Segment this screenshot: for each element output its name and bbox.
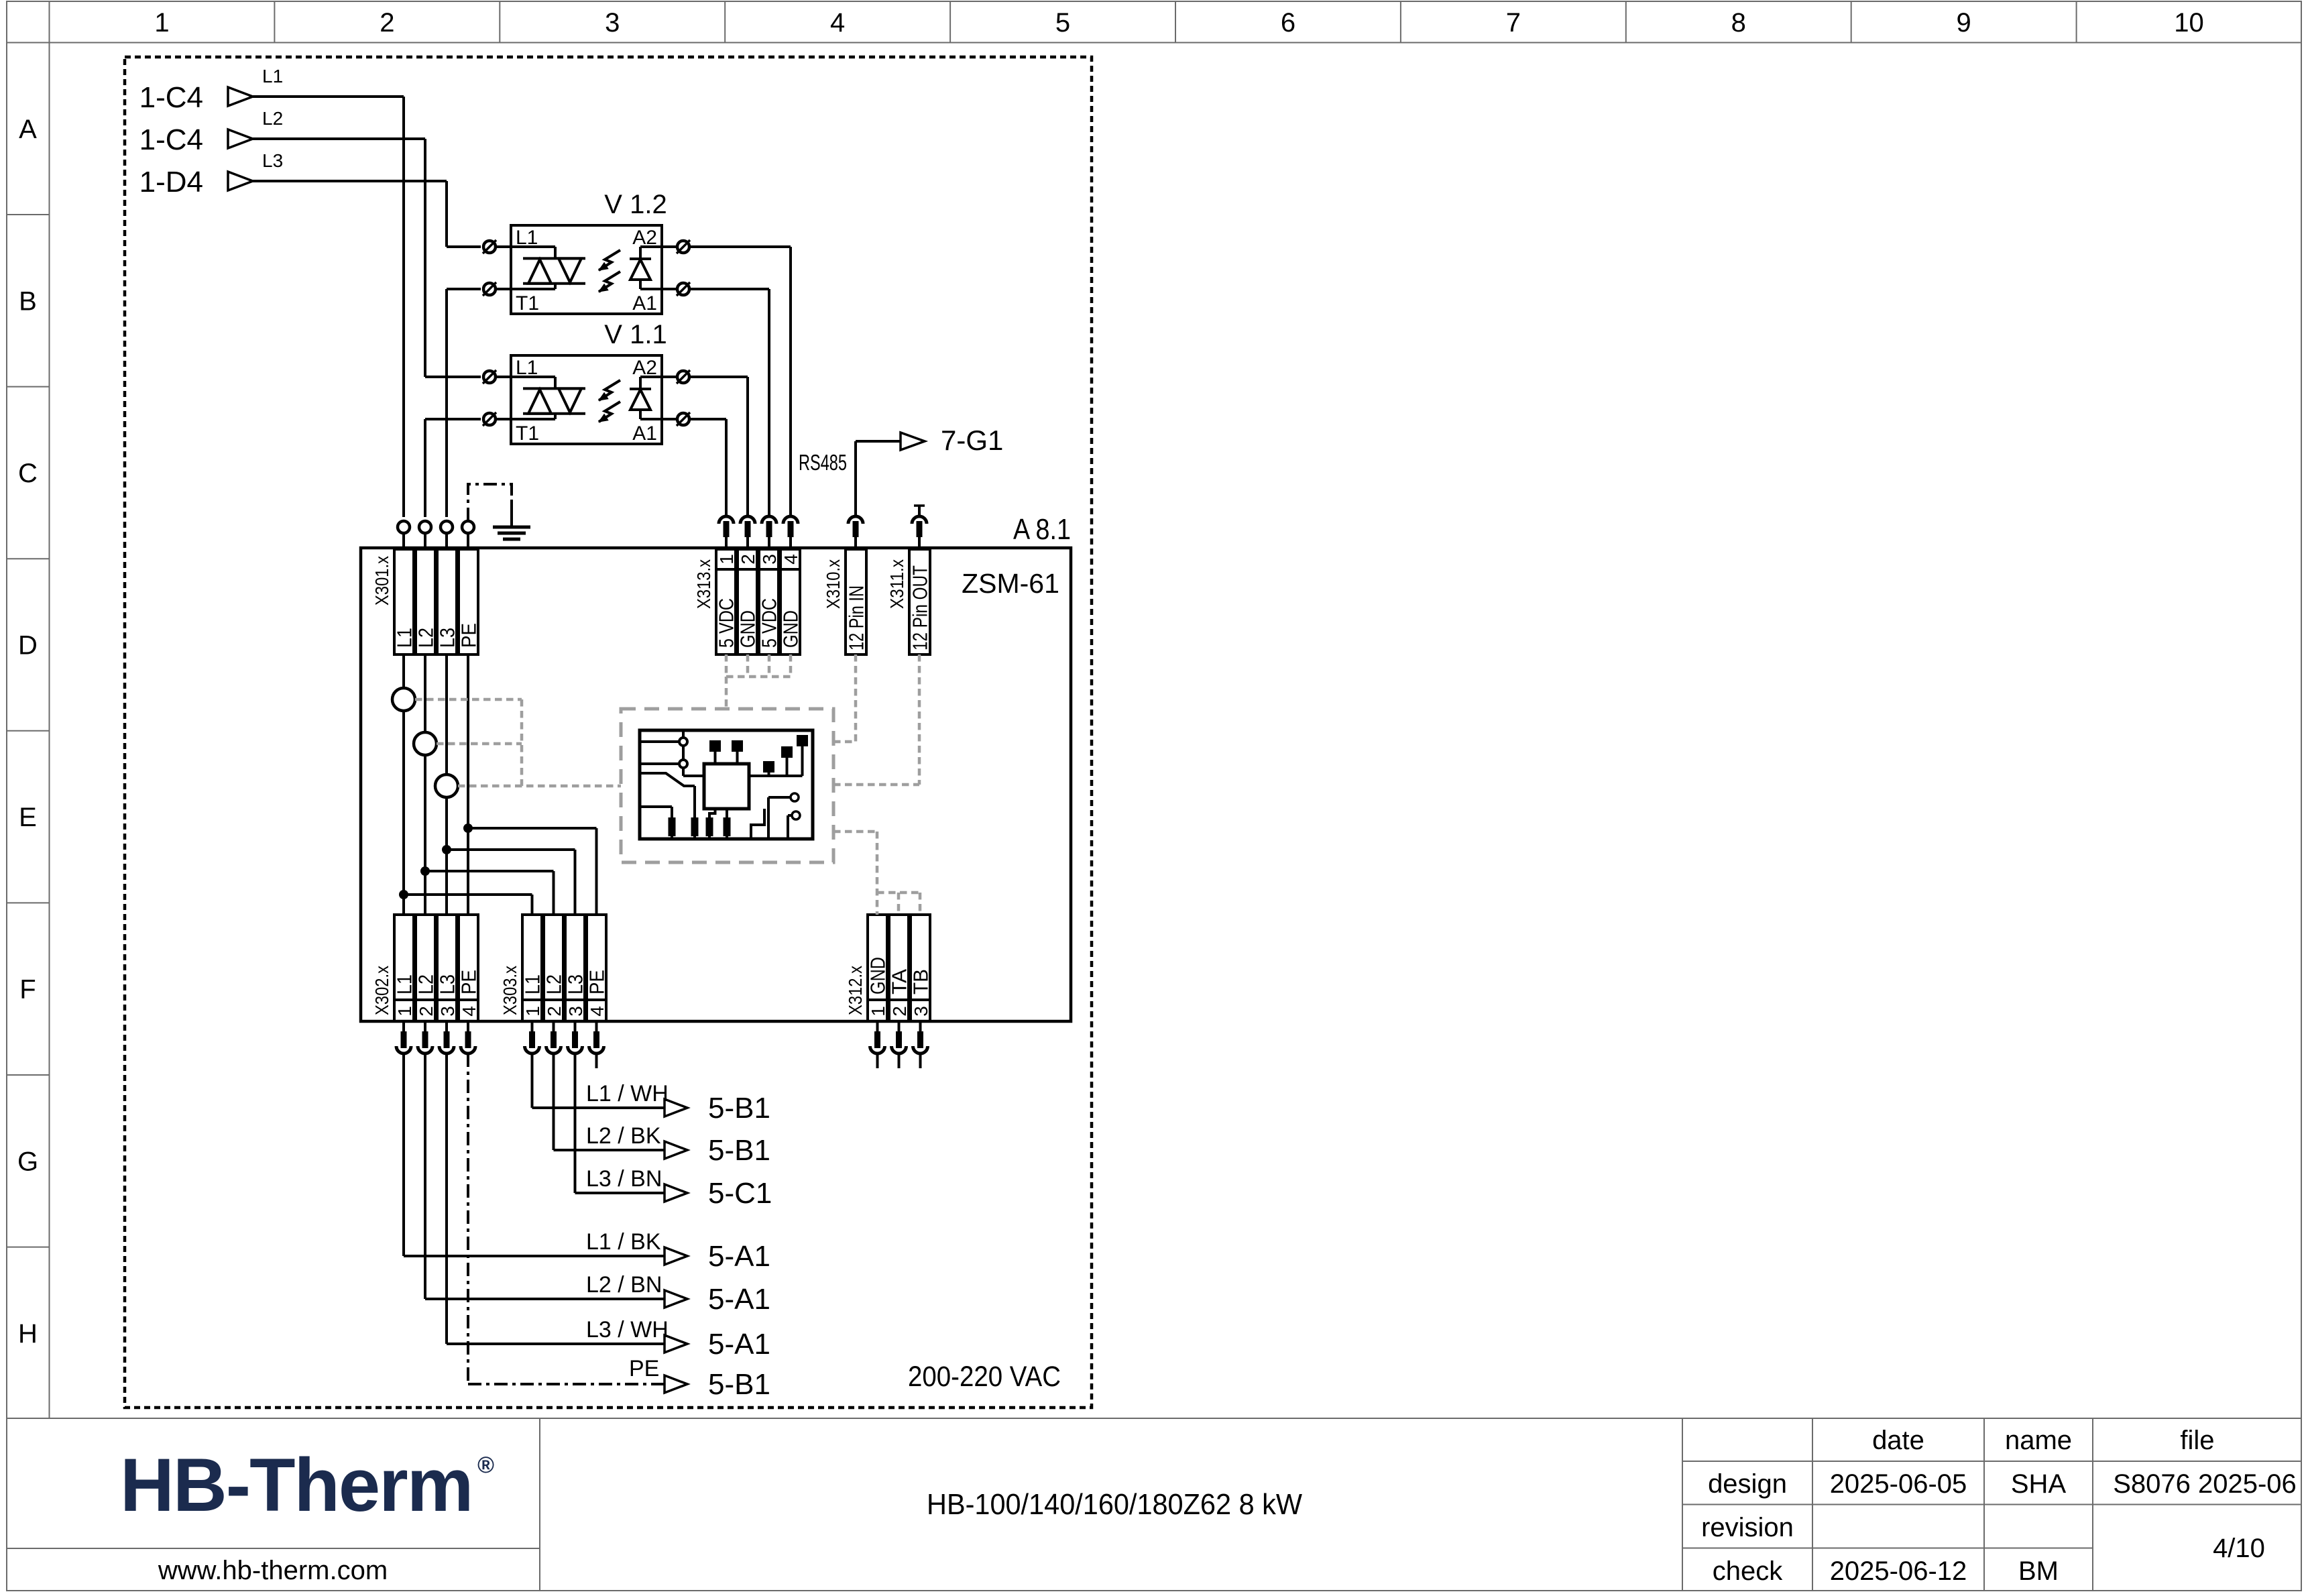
- svg-text:L2 / BK: L2 / BK: [586, 1123, 661, 1149]
- svg-text:12 Pin OUT: 12 Pin OUT: [909, 565, 932, 650]
- svg-text:5-B1: 5-B1: [708, 1134, 770, 1167]
- svg-text:PE: PE: [629, 1356, 659, 1381]
- svg-text:1-C4: 1-C4: [139, 81, 203, 114]
- svg-text:4: 4: [781, 554, 801, 565]
- svg-text:V 1.1: V 1.1: [604, 320, 667, 349]
- svg-text:GND: GND: [779, 610, 803, 648]
- svg-text:T1: T1: [516, 422, 539, 445]
- svg-text:L3: L3: [436, 628, 459, 648]
- svg-text:G: G: [17, 1147, 38, 1176]
- svg-text:2: 2: [380, 8, 394, 38]
- svg-text:PE: PE: [457, 623, 481, 648]
- svg-text:2: 2: [416, 1006, 437, 1017]
- svg-text:200-220 VAC: 200-220 VAC: [908, 1361, 1061, 1393]
- svg-text:L1 / WH: L1 / WH: [586, 1081, 669, 1106]
- svg-text:7-G1: 7-G1: [941, 424, 1003, 456]
- svg-text:L3 / BN: L3 / BN: [586, 1166, 662, 1192]
- svg-text:BM: BM: [2018, 1556, 2059, 1586]
- svg-text:L1: L1: [393, 974, 416, 994]
- svg-text:date: date: [1872, 1426, 1924, 1455]
- svg-text:A 8.1: A 8.1: [1013, 513, 1071, 546]
- svg-text:B: B: [19, 286, 37, 316]
- svg-text:S8076 2025-06: S8076 2025-06: [2113, 1469, 2297, 1499]
- svg-text:X311.x: X311.x: [886, 559, 907, 609]
- svg-text:4: 4: [587, 1006, 608, 1017]
- svg-text:L2 / BN: L2 / BN: [586, 1272, 662, 1298]
- svg-text:L3: L3: [564, 974, 587, 994]
- svg-text:A1: A1: [632, 422, 657, 445]
- svg-text:5 VDC: 5 VDC: [758, 598, 781, 648]
- svg-text:1: 1: [716, 554, 737, 565]
- svg-text:2025-06-05: 2025-06-05: [1830, 1469, 1967, 1499]
- svg-text:5-A1: 5-A1: [708, 1240, 770, 1273]
- svg-text:file: file: [2180, 1426, 2214, 1455]
- svg-text:2025-06-12: 2025-06-12: [1830, 1556, 1967, 1586]
- svg-text:1: 1: [522, 1006, 543, 1017]
- svg-text:C: C: [18, 459, 38, 488]
- svg-text:L2: L2: [414, 628, 438, 648]
- svg-text:12 Pin IN: 12 Pin IN: [845, 585, 868, 650]
- svg-text:T1: T1: [516, 292, 539, 315]
- svg-text:L3 / WH: L3 / WH: [586, 1317, 669, 1343]
- svg-text:X313.x: X313.x: [693, 559, 714, 609]
- svg-text:5-B1: 5-B1: [708, 1092, 770, 1125]
- svg-text:check: check: [1713, 1556, 1783, 1586]
- svg-text:10: 10: [2174, 8, 2204, 38]
- svg-text:RS485: RS485: [799, 450, 847, 475]
- svg-text:2: 2: [544, 1006, 565, 1017]
- svg-text:HB-100/140/160/180Z62 8 kW: HB-100/140/160/180Z62 8 kW: [927, 1488, 1302, 1521]
- svg-text:3: 3: [605, 8, 620, 38]
- svg-text:revision: revision: [1701, 1513, 1794, 1542]
- svg-text:GND: GND: [866, 957, 890, 994]
- svg-text:A: A: [19, 115, 37, 144]
- svg-text:H: H: [18, 1319, 38, 1349]
- svg-text:5-C1: 5-C1: [708, 1177, 772, 1210]
- svg-text:www.hb-therm.com: www.hb-therm.com: [158, 1556, 388, 1585]
- svg-text:L2: L2: [262, 108, 283, 129]
- svg-text:X301.x: X301.x: [371, 556, 392, 606]
- svg-text:1-C4: 1-C4: [139, 123, 203, 156]
- svg-text:4: 4: [830, 8, 845, 38]
- svg-text:F: F: [19, 975, 36, 1005]
- svg-text:5-B1: 5-B1: [708, 1368, 770, 1401]
- svg-text:design: design: [1708, 1469, 1787, 1499]
- svg-text:1-D4: 1-D4: [139, 166, 203, 198]
- svg-text:PE: PE: [585, 970, 609, 994]
- svg-text:GND: GND: [736, 610, 760, 648]
- svg-text:4/10: 4/10: [2213, 1534, 2265, 1563]
- svg-text:X303.x: X303.x: [500, 966, 520, 1015]
- svg-text:PE: PE: [457, 970, 481, 994]
- svg-text:5-A1: 5-A1: [708, 1328, 770, 1361]
- svg-text:L3: L3: [262, 150, 283, 171]
- svg-text:5 VDC: 5 VDC: [715, 598, 738, 648]
- svg-text:name: name: [2005, 1426, 2072, 1455]
- svg-text:4: 4: [459, 1006, 479, 1017]
- svg-text:1: 1: [394, 1006, 415, 1017]
- svg-text:3: 3: [565, 1006, 586, 1017]
- svg-text:2: 2: [738, 554, 758, 565]
- svg-text:ZSM-61: ZSM-61: [962, 568, 1059, 599]
- svg-text:TB: TB: [909, 969, 933, 994]
- svg-text:HB-Therm: HB-Therm: [120, 1443, 472, 1527]
- svg-text:8: 8: [1731, 8, 1746, 38]
- svg-text:L1: L1: [521, 974, 544, 994]
- svg-text:9: 9: [1957, 8, 1971, 38]
- svg-text:3: 3: [759, 554, 780, 565]
- svg-text:®: ®: [477, 1452, 494, 1478]
- svg-text:3: 3: [911, 1006, 931, 1017]
- svg-text:D: D: [18, 631, 38, 661]
- svg-text:6: 6: [1281, 8, 1295, 38]
- svg-text:1: 1: [868, 1006, 888, 1017]
- svg-text:L1: L1: [393, 628, 416, 648]
- svg-text:V 1.2: V 1.2: [604, 190, 667, 219]
- svg-text:SHA: SHA: [2011, 1469, 2067, 1499]
- svg-text:1: 1: [154, 8, 169, 38]
- svg-text:2: 2: [889, 1006, 910, 1017]
- svg-text:L2: L2: [542, 974, 566, 994]
- svg-text:L3: L3: [436, 974, 459, 994]
- svg-text:L2: L2: [414, 974, 438, 994]
- svg-text:E: E: [19, 803, 37, 832]
- svg-text:3: 3: [437, 1006, 458, 1017]
- svg-text:5-A1: 5-A1: [708, 1283, 770, 1316]
- svg-text:5: 5: [1055, 8, 1070, 38]
- svg-text:L1 / BK: L1 / BK: [586, 1229, 661, 1255]
- svg-text:TA: TA: [888, 969, 911, 994]
- svg-text:X302.x: X302.x: [371, 966, 392, 1015]
- svg-text:L1: L1: [262, 66, 283, 87]
- svg-text:X310.x: X310.x: [823, 559, 844, 609]
- svg-text:7: 7: [1506, 8, 1521, 38]
- svg-text:A1: A1: [632, 292, 657, 315]
- svg-text:X312.x: X312.x: [845, 966, 866, 1015]
